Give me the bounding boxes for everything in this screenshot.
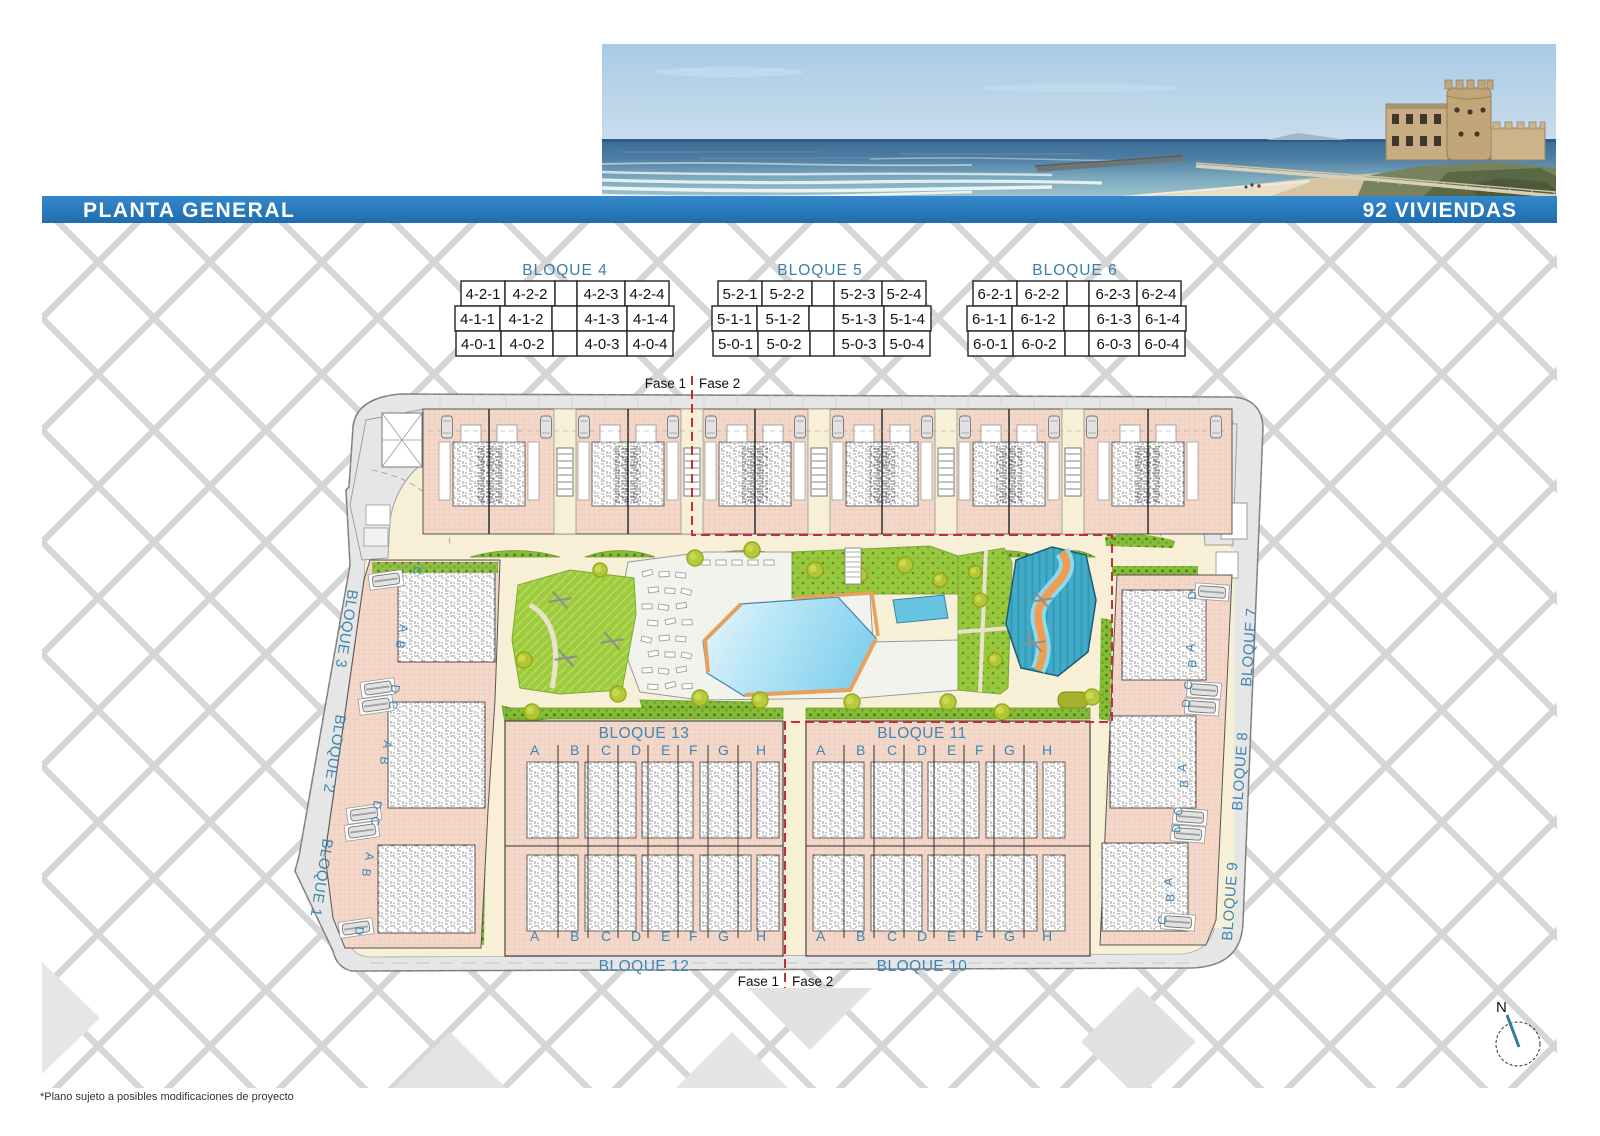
- svg-text:B: B: [570, 742, 579, 758]
- svg-text:5-1-1: 5-1-1: [717, 311, 752, 328]
- svg-text:D: D: [1185, 590, 1200, 600]
- svg-text:4-2-1: 4-2-1: [465, 286, 500, 303]
- svg-text:PLANTA GENERAL: PLANTA GENERAL: [83, 199, 295, 222]
- svg-text:D: D: [1169, 823, 1184, 833]
- svg-text:5-0-2: 5-0-2: [766, 336, 801, 353]
- svg-text:BLOQUE 10: BLOQUE 10: [877, 958, 968, 975]
- svg-text:Fase 2: Fase 2: [792, 974, 833, 989]
- svg-text:F: F: [689, 742, 698, 758]
- svg-text:H: H: [756, 742, 766, 758]
- svg-text:4-0-1: 4-0-1: [461, 336, 496, 353]
- svg-text:A: A: [1161, 877, 1176, 886]
- svg-text:A: A: [816, 742, 826, 758]
- svg-text:D: D: [917, 928, 927, 944]
- svg-text:Fase 2: Fase 2: [699, 376, 740, 391]
- svg-text:5-2-2: 5-2-2: [769, 286, 804, 303]
- svg-text:4-1-4: 4-1-4: [633, 311, 668, 328]
- svg-text:4-1-2: 4-1-2: [508, 311, 543, 328]
- svg-text:D: D: [1179, 698, 1194, 708]
- svg-text:5-1-3: 5-1-3: [841, 311, 876, 328]
- svg-text:*Plano sujeto a posibles modif: *Plano sujeto a posibles modificaciones …: [40, 1091, 294, 1103]
- svg-text:4-0-4: 4-0-4: [632, 336, 667, 353]
- svg-text:6-2-1: 6-2-1: [977, 286, 1012, 303]
- svg-text:G: G: [718, 742, 729, 758]
- svg-text:BLOQUE 12: BLOQUE 12: [599, 958, 690, 975]
- svg-text:6-0-1: 6-0-1: [973, 336, 1008, 353]
- svg-text:B: B: [1163, 893, 1178, 902]
- svg-text:5-2-4: 5-2-4: [886, 286, 921, 303]
- svg-text:B: B: [856, 742, 865, 758]
- svg-text:C: C: [887, 928, 897, 944]
- svg-text:C: C: [1181, 680, 1196, 690]
- svg-text:B: B: [570, 928, 579, 944]
- svg-text:6-0-3: 6-0-3: [1096, 336, 1131, 353]
- svg-text:4-2-3: 4-2-3: [583, 286, 618, 303]
- svg-text:BLOQUE 13: BLOQUE 13: [599, 725, 690, 742]
- svg-text:E: E: [947, 928, 956, 944]
- svg-text:B: B: [856, 928, 865, 944]
- svg-text:5-2-3: 5-2-3: [840, 286, 875, 303]
- svg-text:5-2-1: 5-2-1: [722, 286, 757, 303]
- svg-text:C: C: [887, 742, 897, 758]
- svg-text:4-2-4: 4-2-4: [629, 286, 664, 303]
- svg-text:5-1-2: 5-1-2: [765, 311, 800, 328]
- svg-text:6-1-2: 6-1-2: [1020, 311, 1055, 328]
- svg-text:G: G: [718, 928, 729, 944]
- svg-text:6-2-3: 6-2-3: [1095, 286, 1130, 303]
- svg-text:Fase 1: Fase 1: [645, 376, 686, 391]
- svg-text:D: D: [917, 742, 927, 758]
- svg-text:G: G: [1004, 928, 1015, 944]
- svg-text:5-0-3: 5-0-3: [841, 336, 876, 353]
- svg-text:D: D: [631, 928, 641, 944]
- svg-text:F: F: [975, 928, 984, 944]
- svg-text:C: C: [1171, 806, 1186, 816]
- svg-text:A: A: [1175, 763, 1190, 772]
- svg-text:5-0-4: 5-0-4: [889, 336, 924, 353]
- svg-text:Fase 1: Fase 1: [738, 974, 779, 989]
- svg-text:6-2-4: 6-2-4: [1141, 286, 1176, 303]
- svg-text:B: B: [1177, 779, 1192, 788]
- svg-text:BLOQUE 4: BLOQUE 4: [522, 262, 608, 279]
- svg-text:6-0-2: 6-0-2: [1021, 336, 1056, 353]
- svg-text:E: E: [947, 742, 956, 758]
- svg-text:E: E: [661, 928, 670, 944]
- svg-text:F: F: [975, 742, 984, 758]
- svg-text:BLOQUE 6: BLOQUE 6: [1032, 262, 1118, 279]
- svg-text:N: N: [1496, 999, 1507, 1016]
- svg-text:C: C: [601, 928, 611, 944]
- svg-text:BLOQUE 5: BLOQUE 5: [777, 262, 863, 279]
- svg-text:6-1-3: 6-1-3: [1096, 311, 1131, 328]
- svg-text:B: B: [1185, 659, 1200, 668]
- svg-text:H: H: [1042, 742, 1052, 758]
- svg-text:6-1-1: 6-1-1: [972, 311, 1007, 328]
- svg-text:D: D: [631, 742, 641, 758]
- svg-text:A: A: [530, 742, 540, 758]
- svg-text:E: E: [661, 742, 670, 758]
- svg-text:4-2-2: 4-2-2: [512, 286, 547, 303]
- svg-text:H: H: [756, 928, 766, 944]
- svg-text:C: C: [1155, 915, 1170, 925]
- svg-text:G: G: [1004, 742, 1015, 758]
- svg-text:F: F: [689, 928, 698, 944]
- svg-text:4-1-1: 4-1-1: [460, 311, 495, 328]
- svg-text:6-1-4: 6-1-4: [1145, 311, 1180, 328]
- svg-text:A: A: [1183, 643, 1198, 652]
- svg-text:4-0-2: 4-0-2: [509, 336, 544, 353]
- svg-text:A: A: [530, 928, 540, 944]
- svg-text:4-1-3: 4-1-3: [584, 311, 619, 328]
- svg-text:A: A: [816, 928, 826, 944]
- svg-text:4-0-3: 4-0-3: [584, 336, 619, 353]
- svg-text:6-2-2: 6-2-2: [1024, 286, 1059, 303]
- svg-text:C: C: [601, 742, 611, 758]
- svg-text:BLOQUE 11: BLOQUE 11: [877, 725, 967, 742]
- svg-text:H: H: [1042, 928, 1052, 944]
- svg-text:5-0-1: 5-0-1: [718, 336, 753, 353]
- svg-text:92 VIVIENDAS: 92 VIVIENDAS: [1363, 199, 1517, 222]
- svg-text:5-1-4: 5-1-4: [890, 311, 925, 328]
- svg-text:6-0-4: 6-0-4: [1144, 336, 1179, 353]
